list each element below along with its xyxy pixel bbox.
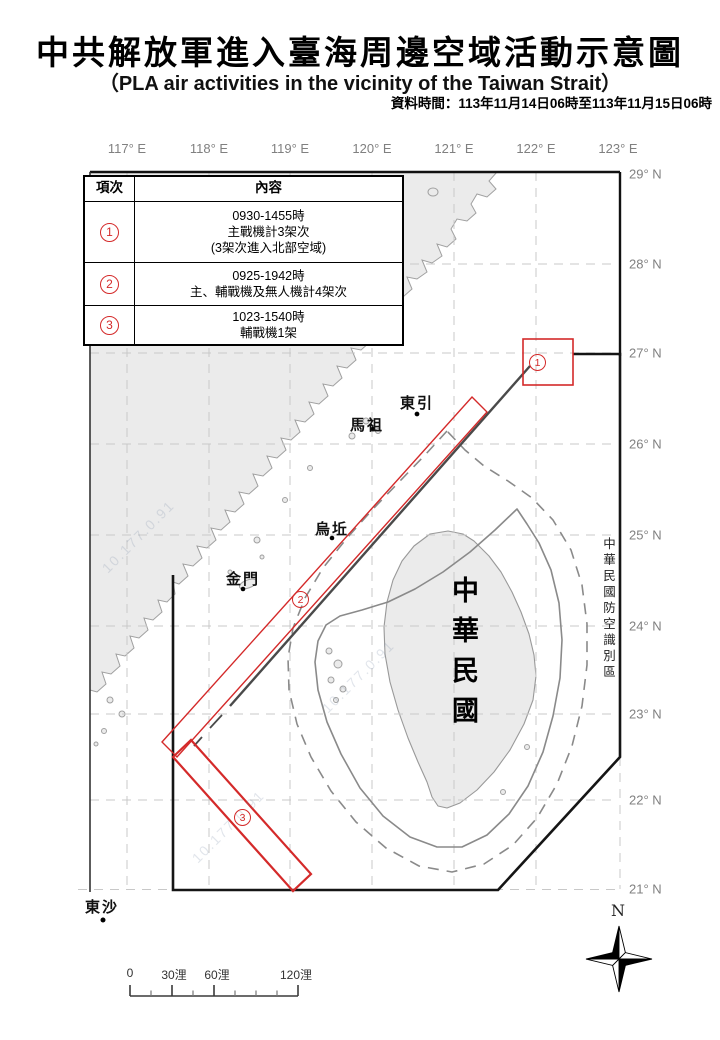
lon-label-122e: 122° E xyxy=(516,141,555,156)
scale-bar xyxy=(130,985,298,996)
map-marker-2: 2 xyxy=(292,591,309,608)
data-time-range: 資料時間：113年11月14日06時至113年11月15日06時 xyxy=(0,92,712,112)
lon-label-121e: 121° E xyxy=(434,141,473,156)
circled-1: 1 xyxy=(100,223,119,242)
adiz-zone-label: 中華民國防空識別區 xyxy=(599,537,618,681)
scale-label-0: 0 xyxy=(127,966,134,980)
place-label-kinmen: 金門 xyxy=(226,568,260,589)
row-1-time: 0930-1455時 xyxy=(232,208,304,224)
table-row-2-number: 2 xyxy=(85,263,135,306)
lat-label-29n: 29° N xyxy=(629,167,662,182)
compass-rose xyxy=(586,926,652,992)
lat-label-28n: 28° N xyxy=(629,257,662,272)
place-label-wuqiu: 烏坵 xyxy=(315,518,349,539)
row-3-time: 1023-1540時 xyxy=(232,309,304,325)
table-header-content: 內容 xyxy=(135,177,402,202)
row-3-detail: 輔戰機1架 xyxy=(240,325,297,341)
scale-label-120: 120浬 xyxy=(280,966,312,983)
place-label-matsu: 馬祖 xyxy=(350,414,384,435)
lon-label-120e: 120° E xyxy=(352,141,391,156)
lon-label-119e: 119° E xyxy=(271,141,309,156)
table-row-3-content: 1023-1540時 輔戰機1架 xyxy=(135,306,402,344)
table-header-item: 項次 xyxy=(85,177,135,202)
table-row-3-number: 3 xyxy=(85,306,135,344)
pla-activity-map-page: 10.177.0.91 10.177.0.91 10.177.0.91 中共解放… xyxy=(0,0,720,1040)
compass-north-label: N xyxy=(611,901,625,920)
lat-label-23n: 23° N xyxy=(629,707,662,722)
table-row-1-content: 0930-1455時 主戰機計3架次 (3架次進入北部空域) xyxy=(135,202,402,263)
lat-label-22n: 22° N xyxy=(629,793,662,808)
taiwan-roc-label: 中華民國 xyxy=(443,576,482,736)
row-2-detail: 主、輔戰機及無人機計4架次 xyxy=(190,284,347,300)
sortie-table: 項次 內容 1 0930-1455時 主戰機計3架次 (3架次進入北部空域) 2… xyxy=(83,175,404,346)
place-label-dongyin: 東引 xyxy=(400,392,434,413)
lon-label-118e: 118° E xyxy=(190,141,228,156)
map-marker-3: 3 xyxy=(234,809,251,826)
circled-2: 2 xyxy=(100,275,119,294)
scale-label-60: 60浬 xyxy=(204,966,229,983)
lon-label-123e: 123° E xyxy=(598,141,637,156)
lat-label-26n: 26° N xyxy=(629,437,662,452)
lat-label-21n: 21° N xyxy=(629,882,662,897)
map-marker-1: 1 xyxy=(529,354,546,371)
row-1-detail: 主戰機計3架次 xyxy=(228,224,310,240)
lon-label-117e: 117° E xyxy=(108,141,146,156)
table-row-1-number: 1 xyxy=(85,202,135,263)
taiwan-strait-map xyxy=(0,0,720,1040)
lat-label-27n: 27° N xyxy=(629,346,662,361)
row-1-note: (3架次進入北部空域) xyxy=(211,240,326,256)
lat-label-25n: 25° N xyxy=(629,528,662,543)
row-2-time: 0925-1942時 xyxy=(232,268,304,284)
lat-label-24n: 24° N xyxy=(629,619,662,634)
place-label-pratas: 東沙 xyxy=(85,896,119,917)
table-row-2-content: 0925-1942時 主、輔戰機及無人機計4架次 xyxy=(135,263,402,306)
circled-3: 3 xyxy=(100,316,119,335)
scale-label-30: 30浬 xyxy=(161,966,186,983)
